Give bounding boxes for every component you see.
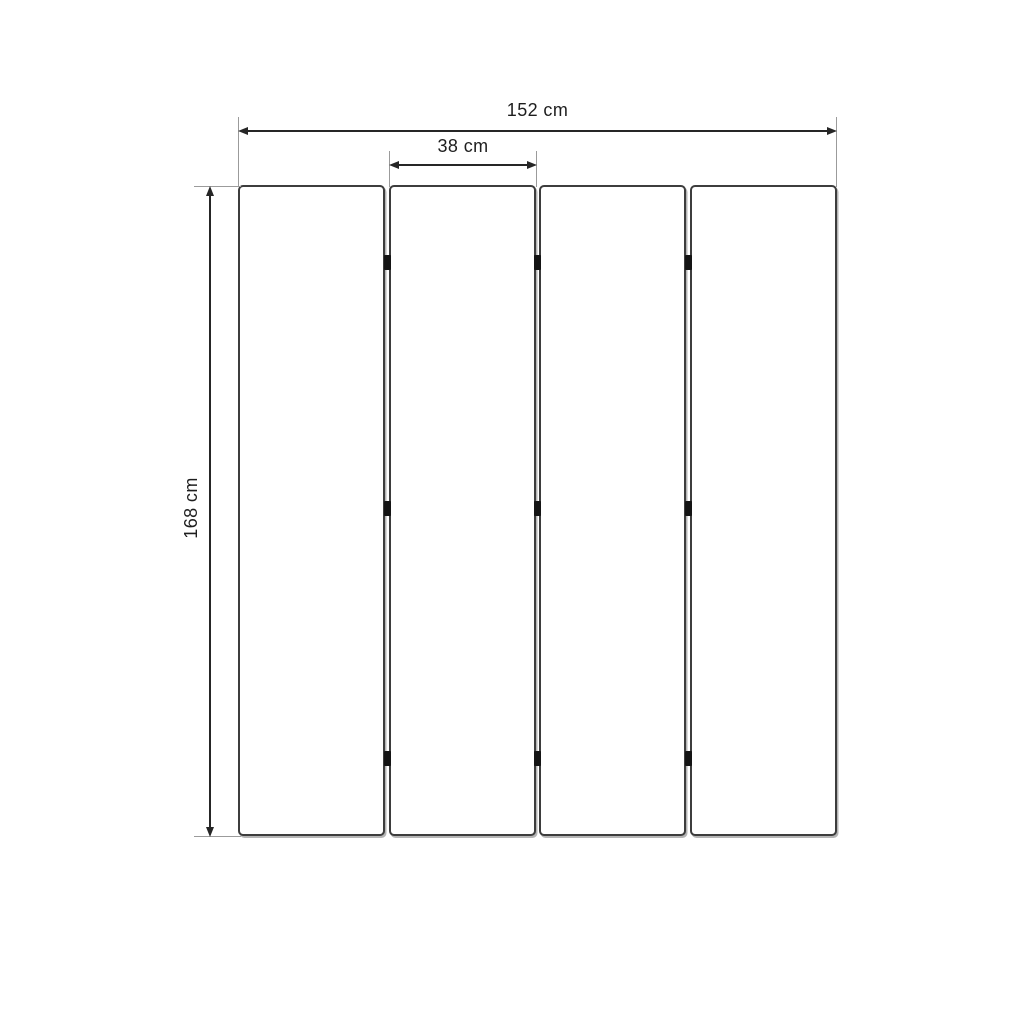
arrowhead-right-icon — [827, 127, 837, 135]
dimension-label-total-width: 152 cm — [238, 99, 837, 121]
hinge-junction1-middle — [384, 501, 391, 516]
panel-3 — [539, 185, 686, 836]
arrowhead-left-icon — [238, 127, 248, 135]
hinge-junction2-middle — [534, 501, 541, 516]
extension-line-height-bottom — [194, 836, 241, 837]
hinge-junction2-top — [534, 255, 541, 270]
dimension-label-height: 168 cm — [180, 463, 202, 553]
hinge-junction1-bottom — [384, 751, 391, 766]
panel-4 — [690, 185, 837, 836]
dimension-line-panel-width — [398, 164, 528, 166]
arrowhead-right-icon — [527, 161, 537, 169]
dimension-label-panel-width: 38 cm — [389, 135, 537, 157]
dimension-drawing-canvas: 152 cm 38 cm 168 cm — [0, 0, 1024, 1024]
extension-line-height-top — [194, 186, 241, 187]
arrowhead-up-icon — [206, 186, 214, 196]
dimension-line-total-width — [247, 130, 828, 132]
hinge-junction2-bottom — [534, 751, 541, 766]
hinge-junction3-top — [685, 255, 692, 270]
arrowhead-down-icon — [206, 827, 214, 837]
arrowhead-left-icon — [389, 161, 399, 169]
panel-1 — [238, 185, 385, 836]
panel-2 — [389, 185, 536, 836]
dimension-line-height — [209, 195, 211, 827]
hinge-junction1-top — [384, 255, 391, 270]
hinge-junction3-bottom — [685, 751, 692, 766]
hinge-junction3-middle — [685, 501, 692, 516]
